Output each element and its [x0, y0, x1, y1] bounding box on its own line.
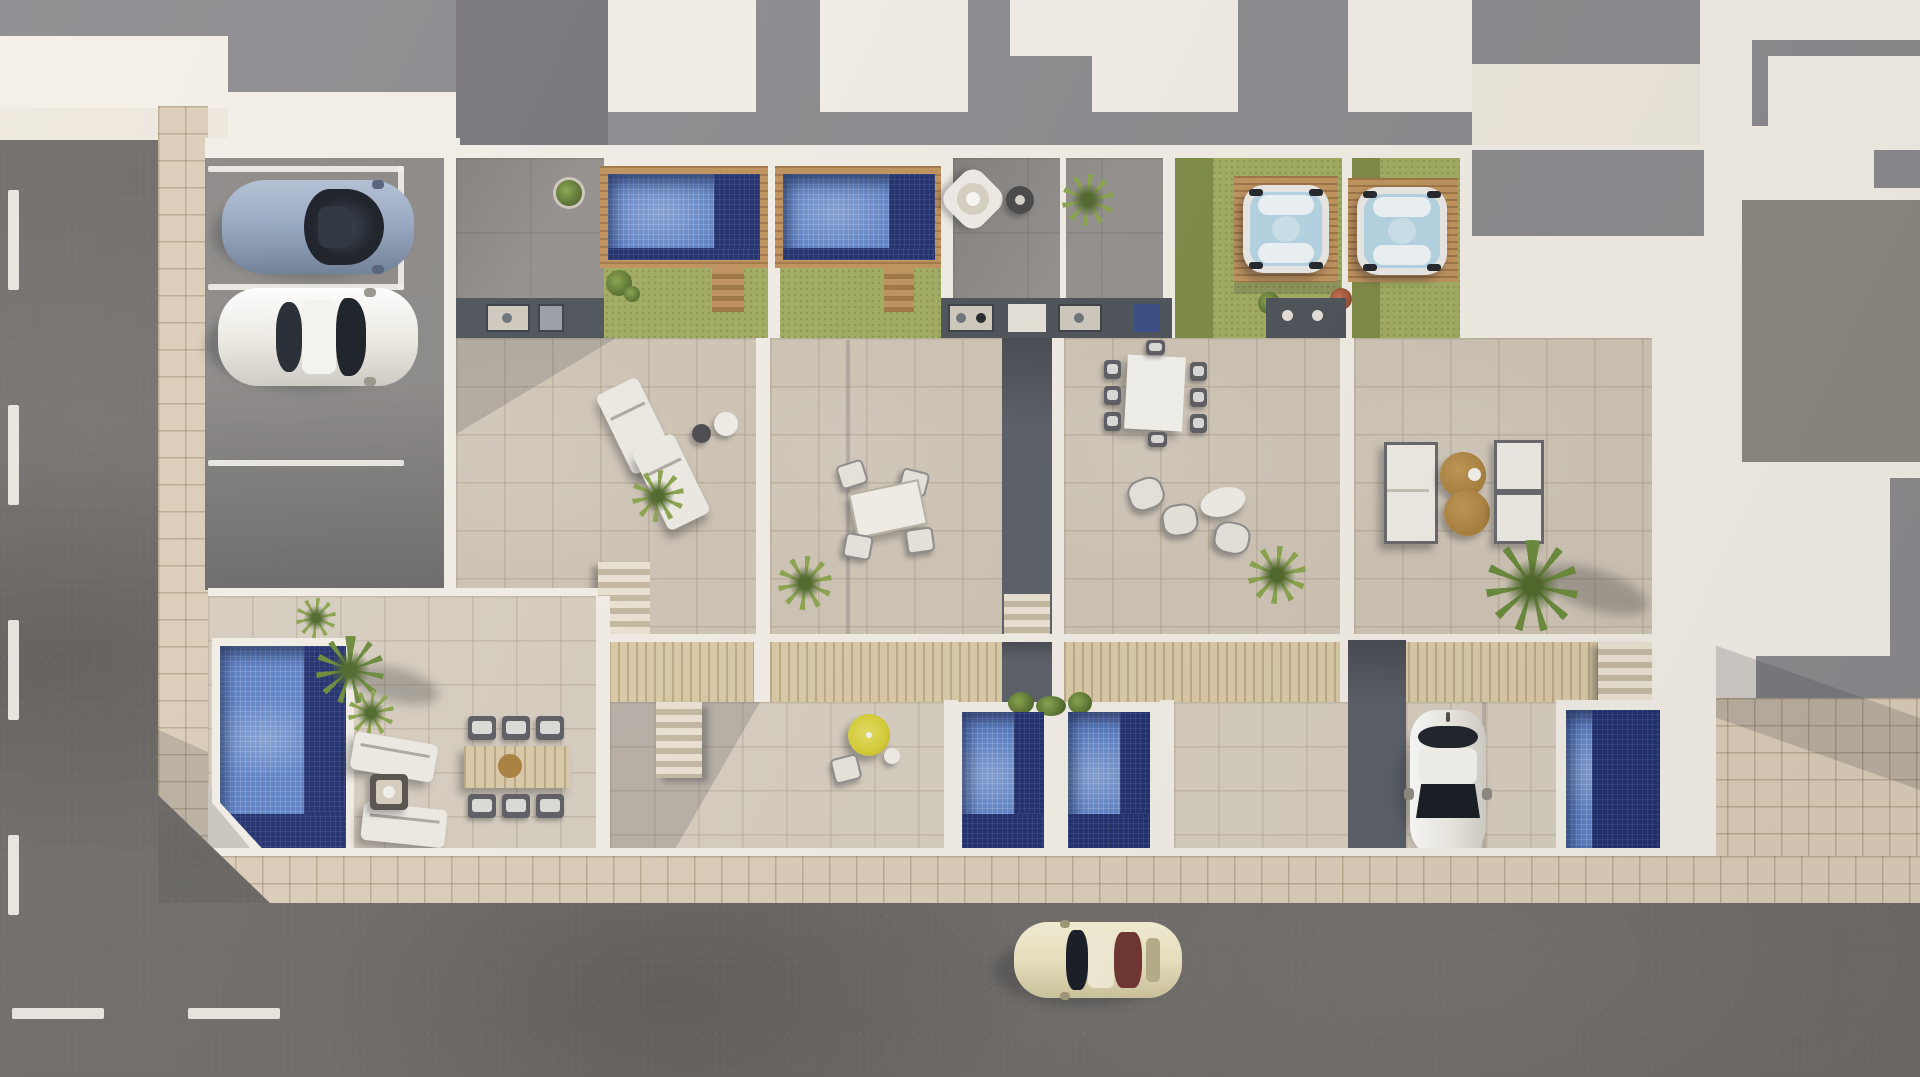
hot-tub-1-deck-shadow — [1234, 280, 1340, 294]
unit-b-counter-sink — [956, 313, 966, 323]
car-driveway-rear-glass — [1418, 726, 1478, 748]
t4-sofa — [1384, 442, 1438, 544]
unit-c-glass-panel — [1134, 304, 1160, 332]
bottom-road-dash-2 — [188, 1008, 280, 1019]
right-roof-a — [1768, 56, 1920, 158]
roof-4-notch — [1010, 0, 1092, 56]
unit-d-counter-dot-b — [1312, 310, 1323, 321]
roof-shadow-6 — [1238, 0, 1348, 152]
hot-tub-1 — [1243, 185, 1329, 273]
hot-tub-2-seat-top — [1373, 197, 1431, 217]
car-white-mirror-bottom — [364, 377, 376, 386]
car-driveway-mirror-right — [1482, 788, 1492, 800]
driveway-pool-deep — [1592, 710, 1660, 850]
aerial-render-scene — [0, 0, 1920, 1077]
terrace-2-chair-3 — [842, 532, 874, 561]
unit-d-kitchen-band — [1266, 298, 1346, 338]
hot-tub-1-center — [1272, 216, 1300, 242]
parking-lower-shadow — [205, 380, 460, 590]
hot-tub-1-pillow-a — [1249, 189, 1263, 196]
car-driveway-antenna — [1446, 712, 1450, 722]
t3-chair-r3 — [1190, 414, 1207, 433]
bottom-sidewalk — [208, 856, 1920, 903]
unit-a-counter — [486, 304, 530, 332]
unit-d-counter-dot-a — [1282, 310, 1293, 321]
unit-b-fern — [1062, 174, 1114, 226]
fire-bowl — [1006, 186, 1034, 214]
unit-b-counter — [948, 304, 994, 332]
corner-chair-t3 — [536, 716, 564, 740]
stall-line-3 — [208, 460, 404, 466]
corner-garden-east-wall — [596, 596, 610, 858]
roof-2 — [608, 0, 756, 112]
roof-shadow-2 — [456, 0, 608, 158]
corner-chair-t1 — [468, 716, 496, 740]
terrace-3 — [1064, 338, 1340, 640]
unit-a-lawn-steps — [712, 268, 744, 312]
twin-pools-planter-a — [1008, 692, 1034, 714]
roof-shadow-3 — [756, 0, 820, 152]
left-road-dash-1 — [8, 190, 19, 290]
car-cream-mirror-bottom — [1060, 992, 1070, 1000]
wall-lawn-end — [1460, 158, 1472, 338]
unit-a-kitchen-band — [456, 298, 604, 338]
driveway-pool-water — [1566, 710, 1660, 850]
car-blue-mirror-bottom — [372, 265, 384, 274]
t4-sofa-cushion-line — [1387, 489, 1429, 492]
terrace-3-fern — [1248, 546, 1306, 604]
unit-a-potted-plant — [556, 180, 582, 206]
roof-3 — [820, 0, 968, 112]
corner-table-centerpiece — [498, 754, 522, 778]
corner-fire-table — [370, 774, 408, 810]
roof-5 — [1092, 0, 1238, 112]
side-passage-1-steps — [1004, 594, 1050, 638]
fire-bowl-center — [1015, 195, 1025, 205]
hot-tub-1-pillow-d — [1309, 262, 1323, 269]
right-roof-b-shade — [1890, 478, 1920, 656]
corner-chair-t2 — [502, 716, 530, 740]
terrace-4-staircase — [1598, 642, 1652, 702]
car-cream-mirror-top — [1060, 920, 1070, 928]
pool-b-deep-edge — [783, 248, 935, 260]
unit-b-lawn — [780, 268, 943, 338]
t3-chair-head-top — [1146, 340, 1165, 355]
twin-pools-east-wall — [1160, 700, 1174, 858]
t4-tray — [1468, 468, 1481, 481]
top-left-roof — [0, 36, 228, 108]
car-white-mirror-top — [364, 288, 376, 297]
left-road-dash-3 — [8, 620, 19, 720]
side-passage-2 — [1348, 640, 1406, 858]
hot-tub-2-pillow-b — [1427, 191, 1441, 198]
corner-chair-b3 — [536, 794, 564, 818]
t3-chair-l2 — [1104, 386, 1121, 405]
lounger-dark-table — [692, 424, 711, 443]
hot-tub-1-pillow-c — [1249, 262, 1263, 269]
t3-chair-head-bottom — [1148, 432, 1167, 447]
car-cream-rear-window — [1114, 932, 1142, 988]
patio-parasol — [848, 714, 890, 756]
hot-tub-2-pillow-a — [1363, 191, 1377, 198]
bottom-road — [0, 903, 1920, 1077]
hot-tub-1-water — [1250, 192, 1322, 266]
upper-right-roof-shade — [1472, 150, 1704, 236]
car-white-rear-glass — [276, 302, 302, 372]
car-driveway-windshield — [1416, 784, 1480, 818]
terrace-1-fern — [632, 470, 684, 522]
corner-fire-table-bowl — [383, 786, 395, 798]
patio-parasol-pole — [866, 732, 872, 738]
passage-door-mat — [1008, 304, 1046, 332]
t3-chair-l3 — [1104, 412, 1121, 431]
roof-shadow-7 — [1472, 0, 1704, 64]
twin-pools-planter-c — [1068, 692, 1092, 714]
t4-palm — [1486, 540, 1578, 632]
corner-garden-fern-top — [296, 598, 336, 638]
pool-b-water — [783, 174, 935, 260]
t3-chair-r2 — [1190, 388, 1207, 407]
terrace-2-chair-4 — [904, 526, 935, 555]
corner-chair-b2 — [502, 794, 530, 818]
t4-armchair-2 — [1494, 492, 1544, 544]
car-blue-roof — [318, 206, 352, 248]
driveway-side-strip — [1486, 702, 1556, 858]
hot-tub-2-seat-bottom — [1373, 245, 1431, 265]
bottom-road-dash-1 — [12, 1008, 104, 1019]
lounger-white-table — [714, 412, 738, 436]
car-blue-mirror-top — [372, 180, 384, 189]
terrace-3-dining-table — [1124, 355, 1186, 432]
hot-tub-2 — [1357, 187, 1447, 275]
driveway-garden-west — [1174, 702, 1348, 858]
patio-side-table — [884, 748, 900, 764]
unit-b-lawn-steps — [884, 268, 914, 312]
unit-a-counter-sink — [502, 313, 512, 323]
hot-tub-2-center — [1388, 218, 1416, 244]
pool-a-water — [608, 174, 760, 260]
corner-chair-b1 — [468, 794, 496, 818]
wall-passage-terrace-3 — [1052, 338, 1064, 640]
deck-band-top-rail — [456, 634, 1652, 642]
wall-terrace-1-2 — [756, 338, 770, 640]
car-white-windshield — [336, 298, 366, 376]
patio-staircase — [656, 702, 702, 778]
top-roof-shadow — [0, 0, 228, 36]
unit-c-lawn-shadow — [1175, 158, 1213, 338]
hot-tub-2-pillow-c — [1363, 264, 1377, 271]
hot-tub-2-water — [1364, 194, 1440, 268]
unit-a-bush-small — [624, 286, 640, 302]
t3-chair-l1 — [1104, 360, 1121, 379]
t4-armchair-1 — [1494, 440, 1544, 492]
hot-tub-1-pillow-b — [1309, 189, 1323, 196]
car-white-roof — [302, 300, 336, 374]
building-east-wall — [1652, 338, 1704, 640]
deck-band-2 — [770, 642, 1002, 702]
car-cream-windshield — [1066, 930, 1088, 990]
hot-tub-1-seat-bottom — [1258, 243, 1314, 263]
right-roof-gray — [1742, 200, 1920, 462]
unit-c-counter-sink — [1074, 313, 1084, 323]
pool-a-deep-edge — [608, 248, 760, 260]
plunge-pool-2 — [1068, 712, 1150, 854]
car-cream-roof — [1088, 932, 1114, 988]
deck-band-3 — [1064, 642, 1340, 702]
hot-tub-1-seat-top — [1258, 195, 1314, 215]
left-road-dash-2 — [8, 405, 19, 505]
car-blue-coupe — [222, 180, 414, 274]
corner-garden-fern — [348, 690, 394, 736]
t3-chair-r1 — [1190, 362, 1207, 381]
wall-terrace-3-4 — [1340, 338, 1354, 640]
car-driveway-mirror-left — [1404, 788, 1414, 800]
unit-b-counter-burner — [976, 313, 986, 323]
car-driveway-roof — [1419, 748, 1477, 784]
roof-shadow-1 — [228, 0, 460, 92]
car-cream-trunk-vent — [1146, 938, 1160, 982]
roof-6 — [1348, 0, 1472, 112]
left-road-dash-4 — [8, 835, 19, 915]
terrace-2-fern — [778, 556, 832, 610]
deck-band-gap-1 — [754, 642, 770, 702]
car-white-driveway — [1410, 710, 1486, 856]
unit-a-grill — [538, 304, 564, 332]
unit-c-counter — [1058, 304, 1102, 332]
right-roof-band — [1874, 150, 1920, 188]
t4-pouf-2 — [1444, 490, 1490, 536]
car-white-hatchback — [218, 288, 418, 386]
hot-tub-2-pillow-d — [1427, 264, 1441, 271]
parking-head-wall — [205, 138, 460, 160]
plunge-pool-1 — [962, 712, 1044, 854]
driveway-east-wall — [1668, 640, 1704, 858]
car-cream-classic — [1014, 922, 1182, 998]
stall-line-1 — [208, 166, 404, 172]
